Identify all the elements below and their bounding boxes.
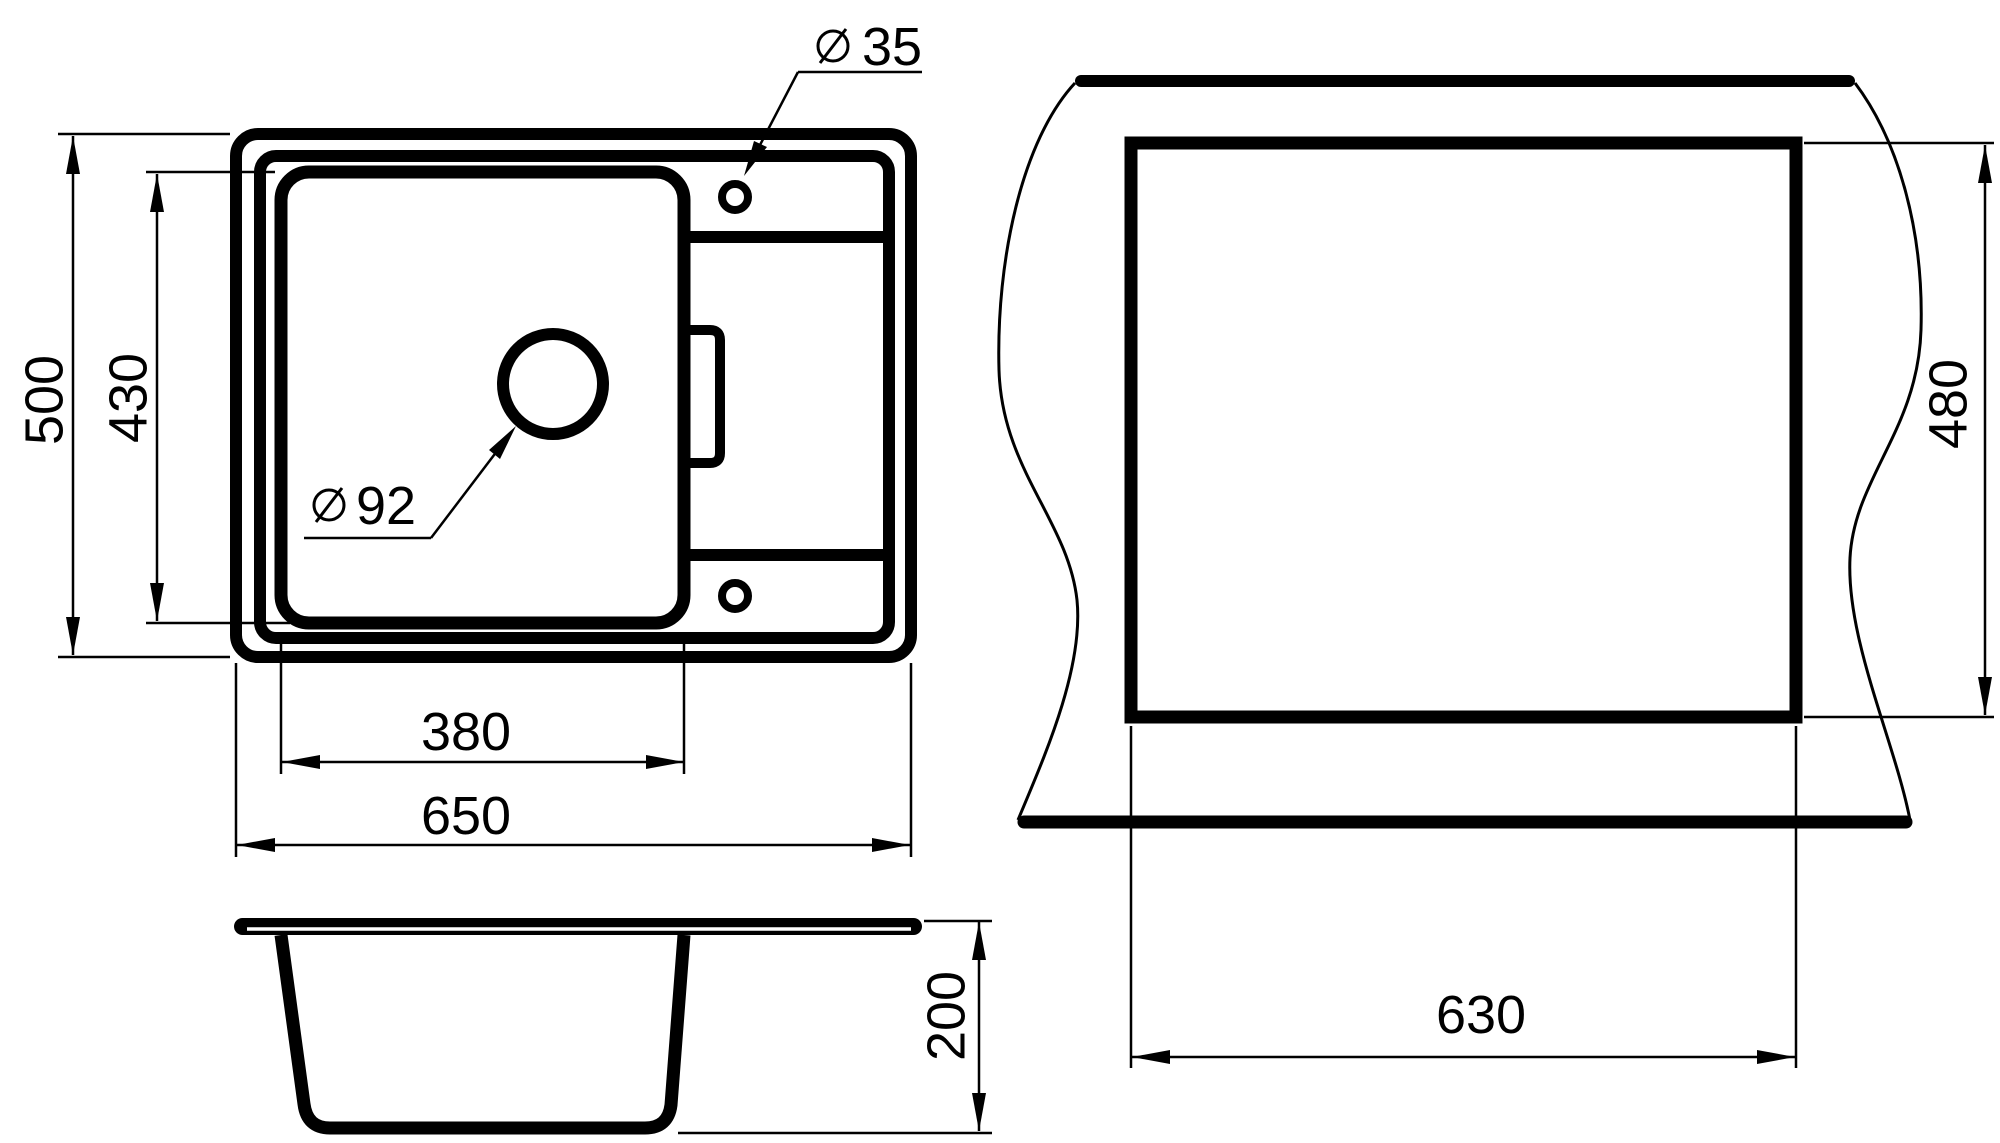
- dim-bowl-height-label: 200: [916, 971, 976, 1061]
- arrowhead: [282, 755, 320, 769]
- break-line-right: [1850, 83, 1921, 820]
- dim-cutout-depth: 480: [1804, 143, 1994, 717]
- dim-overall-depth-label: 500: [14, 355, 74, 445]
- cutout-rectangle: [1131, 143, 1796, 717]
- arrowhead: [1757, 1050, 1795, 1064]
- arrowhead: [66, 136, 80, 174]
- arrowhead: [1978, 677, 1992, 715]
- callout-drain-hole: 92: [304, 426, 516, 538]
- sink-outer-edge: [236, 134, 911, 657]
- drain-hole: [503, 334, 603, 434]
- dim-bowl-width-label: 380: [421, 702, 511, 762]
- arrowhead: [150, 583, 164, 621]
- dim-cutout-width-label: 630: [1436, 985, 1526, 1045]
- cutout-view: 480 630: [999, 81, 1994, 1068]
- drawing-sheet: 500 430 380 650: [0, 0, 2000, 1143]
- bowl-outline: [281, 172, 684, 623]
- dim-cutout-width: 630: [1131, 726, 1796, 1068]
- dim-bowl-depth-label: 430: [98, 353, 158, 443]
- dim-drain-hole-label: 92: [356, 476, 416, 536]
- diameter-symbol: [314, 488, 344, 522]
- break-line-left: [999, 83, 1078, 820]
- dim-cutout-depth-label: 480: [1918, 359, 1978, 449]
- arrowhead: [972, 1093, 986, 1131]
- dim-faucet-hole-label: 35: [862, 17, 922, 77]
- arrowhead: [646, 755, 684, 769]
- plan-view: 500 430 380 650: [14, 17, 922, 857]
- bowl-section-profile: [281, 935, 684, 1128]
- arrowhead: [1132, 1050, 1170, 1064]
- arrowhead: [66, 617, 80, 655]
- dim-overall-width: 650: [236, 663, 911, 857]
- arrowhead: [150, 174, 164, 212]
- diameter-symbol: [818, 29, 848, 63]
- arrowhead: [237, 838, 275, 852]
- section-view: 200: [234, 918, 992, 1133]
- arrowhead: [872, 838, 910, 852]
- dim-bowl-height: 200: [678, 921, 992, 1133]
- faucet-hole-bottom: [722, 583, 748, 609]
- flange-profile: [234, 918, 922, 935]
- sink-inner-rim: [260, 156, 889, 638]
- arrowhead: [489, 426, 516, 459]
- dim-overall-width-label: 650: [421, 786, 511, 846]
- arrowhead: [1978, 145, 1992, 183]
- faucet-hole-top: [722, 184, 748, 210]
- arrowhead: [972, 922, 986, 960]
